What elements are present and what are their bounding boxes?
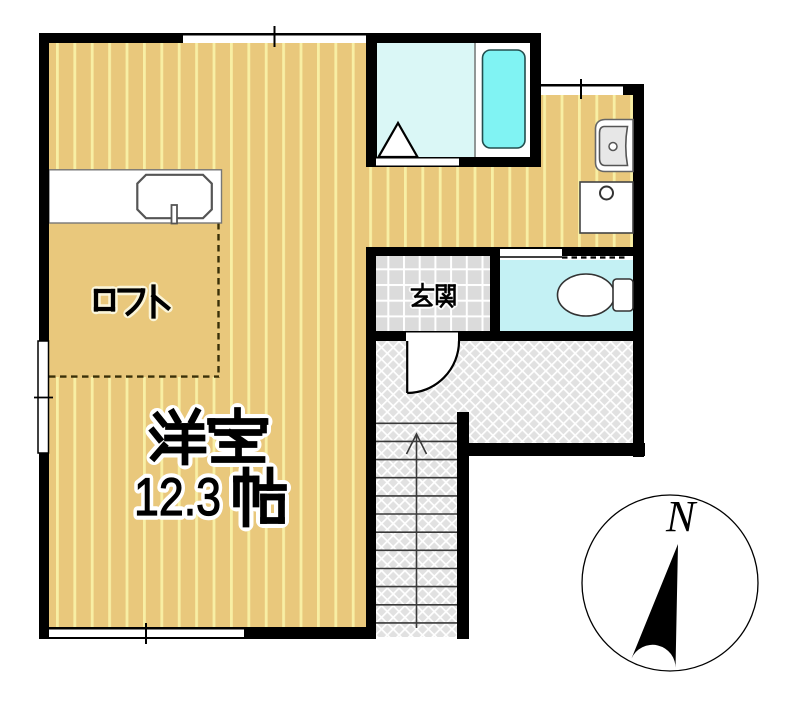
svg-text:12.3: 12.3 [134,468,221,527]
svg-text:N: N [665,492,698,541]
